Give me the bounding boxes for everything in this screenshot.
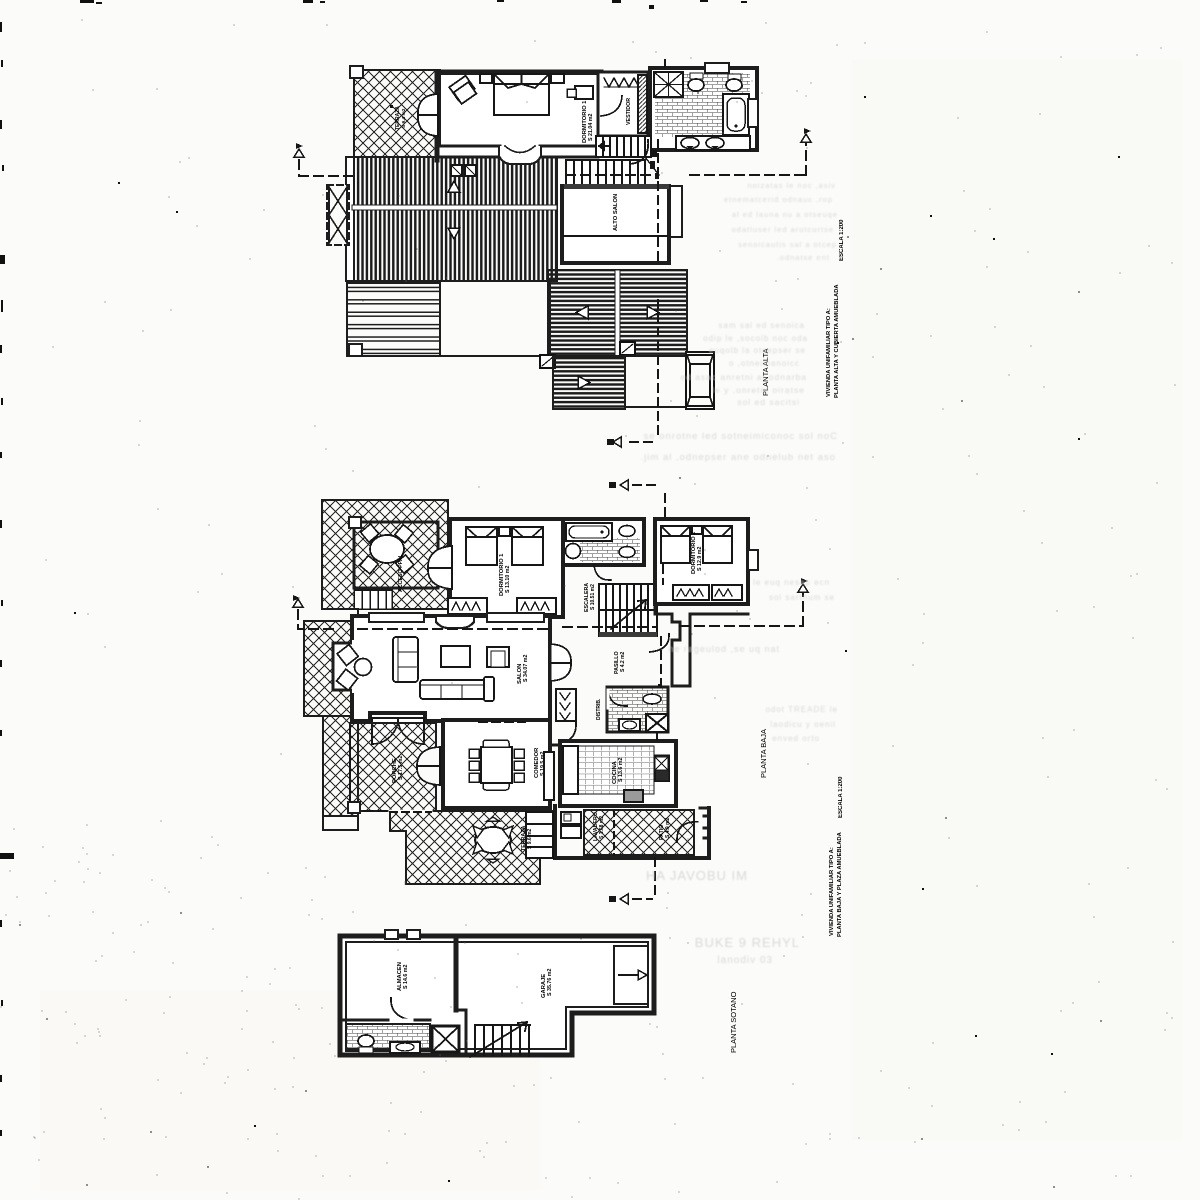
- svg-text:S 35.76 m2: S 35.76 m2: [547, 969, 553, 996]
- svg-text:ed asac anretni al odnarba: ed asac anretni al odnarba: [680, 372, 807, 382]
- svg-text:se onrotne led sotneimiconoc s: se onrotne led sotneimiconoc sol noC: [644, 431, 838, 442]
- svg-text:S 13.6 m2: S 13.6 m2: [618, 758, 624, 782]
- svg-text:odatluser led arutcurtse: odatluser led arutcurtse: [732, 225, 834, 234]
- svg-text:PLANTA BAJA Y PLAZA AMUEBLADA: PLANTA BAJA Y PLAZA AMUEBLADA: [837, 831, 843, 937]
- svg-text:S 4.2 m2: S 4.2 m2: [620, 651, 626, 672]
- svg-text:.odnatse ent: .odnatse ent: [777, 253, 830, 262]
- svg-text:S 9.4 m2: S 9.4 m2: [401, 108, 407, 128]
- svg-text:ESCALA 1:200: ESCALA 1:200: [839, 219, 845, 261]
- svg-text:VESTIDOR: VESTIDOR: [626, 98, 632, 125]
- svg-text:HA JAVOBU IM: HA JAVOBU IM: [646, 868, 748, 883]
- svg-text:enved orto: enved orto: [772, 734, 820, 743]
- svg-text:noizatas le noc ,asiv: noizatas le noc ,asiv: [747, 181, 836, 190]
- svg-text:S 17.5 m2: S 17.5 m2: [398, 756, 404, 780]
- svg-text:al ed launa nu a otseuqe: al ed launa nu a otseuqe: [732, 210, 838, 219]
- svg-text:euqolb la otcepser se: euqolb la otcepser se: [709, 346, 806, 355]
- svg-text:.jim al ,odnepser ane odnelub: .jim al ,odnepser ane odnelub net aso: [641, 452, 836, 463]
- svg-text:sol ed sacitsi: sol ed sacitsi: [737, 397, 800, 407]
- svg-text:ALTO SALON: ALTO SALON: [613, 194, 619, 231]
- svg-text:S 14.6 m2: S 14.6 m2: [403, 965, 409, 989]
- svg-text:odot TREADE le: odot TREADE le: [765, 705, 838, 714]
- svg-text:ACCESO PPAL: ACCESO PPAL: [398, 553, 404, 592]
- svg-text:ne rageulod ,se uq nat: ne rageulod ,se uq nat: [668, 644, 780, 654]
- svg-text:le euq nesep ecn: le euq nesep ecn: [753, 578, 830, 587]
- svg-text:lanodiv 03: lanodiv 03: [717, 955, 773, 966]
- svg-text:PLANTA SOTANO: PLANTA SOTANO: [729, 991, 738, 1053]
- svg-text:PLANTA ALTA Y CUBIERTA AMUEBLA: PLANTA ALTA Y CUBIERTA AMUEBLADA: [834, 284, 840, 398]
- svg-text:S 21.04 m2: S 21.04 m2: [588, 114, 594, 141]
- svg-text:senoicautis sal a otcep: senoicautis sal a otcep: [738, 240, 837, 249]
- svg-text:VIVIENDA UNIFAMILIAR TIPO A:: VIVIENDA UNIFAMILIAR TIPO A:: [829, 847, 835, 936]
- svg-text:laodicu y oenil: laodicu y oenil: [770, 720, 836, 729]
- svg-text:S 12.9 m2: S 12.9 m2: [697, 547, 703, 571]
- svg-text:sol sartnum se: sol sartnum se: [769, 593, 835, 602]
- svg-text:S 4.9 m2: S 4.9 m2: [665, 817, 671, 838]
- svg-text:DISTRIB.: DISTRIB.: [596, 698, 602, 720]
- svg-text:VIVIENDA UNIFAMILIAR TIPO A:: VIVIENDA UNIFAMILIAR TIPO A:: [826, 308, 832, 397]
- svg-text:etnematcerid odnauc ,rop: etnematcerid odnauc ,rop: [724, 195, 833, 204]
- svg-text:le y ,onretni oiratse: le y ,onretni oiratse: [712, 385, 805, 395]
- svg-text:S 34.07 m2: S 34.07 m2: [523, 655, 529, 682]
- svg-text:ESCALA 1:200: ESCALA 1:200: [838, 776, 844, 818]
- svg-text:o ,otneimanoicc: o ,otneimanoicc: [729, 359, 800, 368]
- svg-text:S 13.10 m2: S 13.10 m2: [505, 566, 511, 593]
- svg-text:odip le ,socolb noc oda: odip le ,socolb noc oda: [703, 334, 808, 343]
- svg-text:PLANTA BAJA: PLANTA BAJA: [759, 729, 768, 778]
- svg-text:sam sal ed senoica: sam sal ed senoica: [719, 321, 805, 330]
- svg-text:S 10.51 m2: S 10.51 m2: [590, 584, 596, 610]
- svg-text:S 9.6 m2: S 9.6 m2: [527, 828, 533, 849]
- svg-text:BUKE 9 REHYL: BUKE 9 REHYL: [695, 935, 800, 950]
- svg-text:TERRAZA: TERRAZA: [395, 106, 401, 130]
